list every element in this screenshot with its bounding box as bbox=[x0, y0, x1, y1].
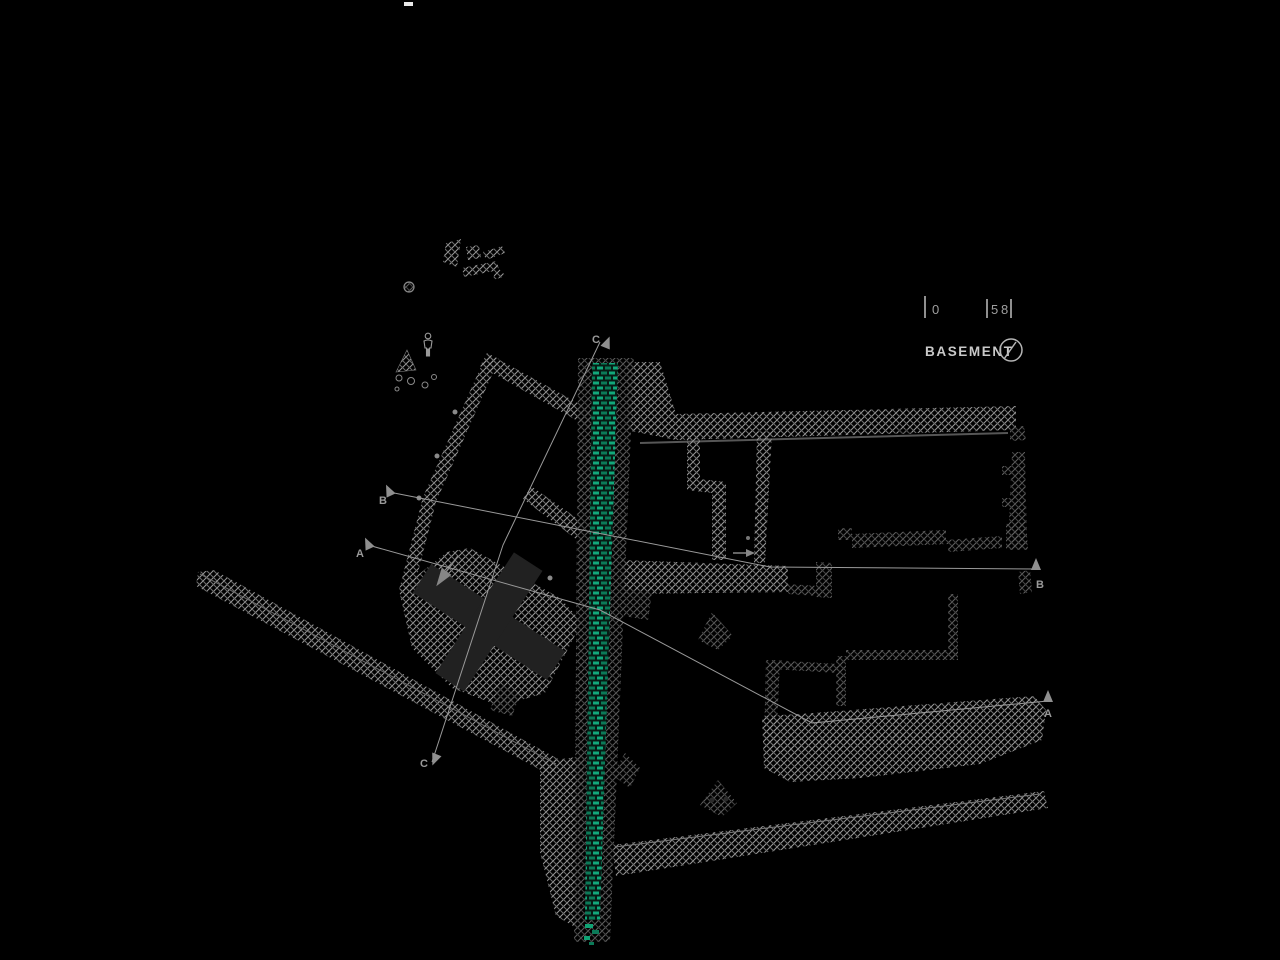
scale-number-0: 0 bbox=[932, 302, 939, 317]
wall-notch bbox=[1002, 498, 1012, 507]
registration-tick bbox=[404, 2, 413, 6]
background bbox=[0, 0, 1280, 960]
loose-brick bbox=[592, 930, 599, 934]
loose-brick bbox=[585, 924, 593, 928]
wall-notch bbox=[1002, 466, 1012, 475]
section-label-c-top: C bbox=[592, 334, 600, 346]
wall-segment bbox=[1018, 570, 1032, 594]
column-dot bbox=[435, 454, 440, 459]
column-base-circle bbox=[404, 282, 414, 292]
loose-brick bbox=[589, 942, 594, 945]
basement-floor-plan-canvas: A A B B C C 0 5 8 BASEMENT bbox=[0, 0, 1280, 960]
column-dot bbox=[548, 576, 553, 581]
scale-number-5: 5 bbox=[991, 302, 998, 317]
section-label-b-right: B bbox=[1036, 579, 1044, 591]
rubble-blob bbox=[622, 588, 652, 620]
wall-segment bbox=[788, 584, 818, 596]
section-label-c-bottom: C bbox=[420, 758, 428, 770]
section-label-a-left: A bbox=[356, 548, 364, 560]
wall-segment bbox=[846, 650, 958, 660]
section-label-a-right: A bbox=[1044, 708, 1052, 720]
loose-brick bbox=[584, 936, 590, 940]
scale-number-8: 8 bbox=[1001, 302, 1008, 317]
fragment bbox=[466, 245, 481, 260]
column-dot bbox=[746, 536, 750, 540]
column-dot bbox=[453, 410, 458, 415]
section-label-b-left: B bbox=[379, 495, 387, 507]
wall-segment bbox=[1010, 426, 1026, 441]
wall-segment bbox=[948, 594, 958, 658]
wall-segment bbox=[836, 656, 846, 706]
wall-segment bbox=[1006, 522, 1028, 550]
blob-dot bbox=[724, 797, 729, 802]
wall-stub bbox=[898, 429, 912, 434]
blob-dot bbox=[710, 798, 715, 803]
